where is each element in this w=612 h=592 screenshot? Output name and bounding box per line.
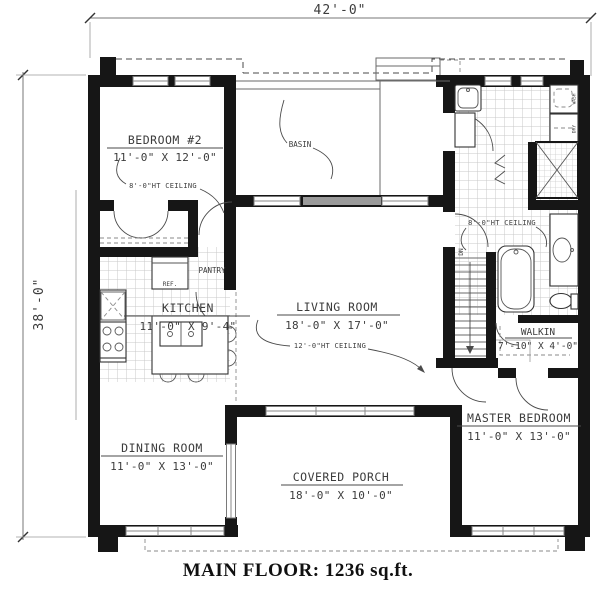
living-room-size: 18'-0" X 17'-0" <box>285 319 389 332</box>
laundry-sink <box>455 85 481 111</box>
kitchen-name: KITCHEN <box>162 301 214 315</box>
label-covered-porch: COVERED PORCH 18'-0" X 10'-0" <box>281 470 403 502</box>
wall-stairs-west <box>443 247 455 358</box>
wall-dining-east-upper <box>225 405 237 445</box>
dining-room-name: DINING ROOM <box>121 441 203 455</box>
dryer-label: DRY <box>572 125 578 133</box>
wall-master-north-a <box>498 368 516 378</box>
wall-closet-south <box>88 247 192 257</box>
label-living-room: LIVING ROOM 18'-0" X 17'-0" 12'-0"HT CEI… <box>256 300 425 373</box>
walkin-size: 7'-10" X 4'-0" <box>498 341 578 352</box>
french-door-left-arc <box>114 211 141 238</box>
wall-bedroom2-pantry-east <box>224 75 236 290</box>
stairs-down-arrow <box>466 346 474 354</box>
label-dining-room: DINING ROOM 11'-0" X 13'-0" <box>101 441 223 473</box>
kitchen-size: 11'-0" X 9'-4" <box>140 320 237 333</box>
bedroom2-ceiling-note: 8'-0"HT CEILING <box>129 182 197 190</box>
vanity-sink <box>550 214 578 286</box>
label-basin: BASIN <box>280 100 333 179</box>
wall-laundry-bath-divider <box>528 200 578 210</box>
covered-porch-name: COVERED PORCH <box>293 470 390 484</box>
living-room-name: LIVING ROOM <box>296 300 378 314</box>
wall-corner-post-left <box>100 57 116 77</box>
master-bedroom-size: 11'-0" X 13'-0" <box>467 430 571 443</box>
stairs-dn-label: DN <box>458 248 465 256</box>
bath-ceiling-note: 8'-0"HT CEILING <box>468 219 536 227</box>
label-master-bedroom: MASTER BEDROOM 11'-0" X 13'-0" <box>457 411 581 443</box>
bedroom2-size: 11'-0" X 12'-0" <box>113 151 217 164</box>
stoop-left <box>98 537 118 552</box>
label-pantry: PANTRY <box>198 266 226 275</box>
label-bedroom2: BEDROOM #2 11'-0" X 12'-0" 8'-0"HT CEILI… <box>107 133 224 213</box>
window-laundry-b <box>521 77 543 86</box>
wall-shower-west <box>528 142 536 200</box>
wall-left-exterior <box>88 75 100 537</box>
window-dining-south <box>126 527 224 536</box>
label-walkin: WALKIN 7'-10" X 4'-0" <box>498 327 578 352</box>
wall-dining-east-lower <box>225 517 237 537</box>
plan-footer-title: MAIN FLOOR: 1236 sq.ft. <box>183 560 414 581</box>
wall-walkin-north-b <box>518 315 578 323</box>
dimension-top: 42'-0" <box>85 3 596 76</box>
overall-width-dimension: 42'-0" <box>314 3 367 18</box>
wall-stairs-east <box>486 252 496 358</box>
wall-walkin-north-a <box>486 315 496 323</box>
window-basin-a <box>254 197 300 206</box>
window-bedroom2-a <box>133 77 168 86</box>
wall-stairs-south <box>436 358 498 368</box>
window-dining-east <box>227 444 236 518</box>
wall-bedroom2-south-a <box>88 200 114 211</box>
basin-name: BASIN <box>289 140 312 149</box>
living-room-ceiling-note: 12'-0"HT CEILING <box>294 342 366 350</box>
stoop-right <box>565 534 585 551</box>
toilet <box>550 294 578 310</box>
laundry-cabinet <box>455 113 475 147</box>
shower <box>536 142 578 198</box>
refrigerator: REF. <box>152 257 188 289</box>
refrigerator-label: REF. <box>163 281 177 288</box>
dimension-left: 38'-0" <box>16 70 86 542</box>
pantry-name: PANTRY <box>198 266 226 275</box>
wall-right-exterior <box>578 75 590 537</box>
wall-corner-post-right <box>570 60 584 77</box>
wall-laundry-west-a <box>443 87 455 113</box>
dining-room-size: 11'-0" X 13'-0" <box>110 460 214 473</box>
window-master-south <box>472 527 564 536</box>
walkin-name: WALKIN <box>521 327 556 338</box>
basin-court <box>236 81 450 195</box>
master-door-arc <box>516 378 548 410</box>
window-laundry-a <box>485 77 511 86</box>
master-bedroom-name: MASTER BEDROOM <box>467 411 571 425</box>
washer-label: WASH <box>572 93 578 104</box>
covered-porch-size: 18'-0" X 10'-0" <box>289 489 393 502</box>
bedroom2-name: BEDROOM #2 <box>128 133 202 147</box>
wall-master-west <box>450 405 462 537</box>
fireplace-strip <box>303 197 381 205</box>
bathtub <box>498 246 534 312</box>
washer-dryer: WASH DRY <box>550 85 578 143</box>
floor-plan-page: 42'-0" 38'-0" <box>0 0 612 592</box>
wall-laundry-west-b <box>443 151 455 212</box>
wall-master-north-b <box>548 368 590 378</box>
floor-plan-drawing: 42'-0" 38'-0" <box>0 0 612 592</box>
range-cooktop <box>100 322 126 358</box>
vestibule-door-arc <box>452 368 486 402</box>
french-door-right-arc <box>141 211 168 238</box>
window-living-south <box>266 407 414 416</box>
window-bedroom2-b <box>175 77 210 86</box>
overall-height-dimension: 38'-0" <box>32 278 47 331</box>
window-basin-b <box>382 197 428 206</box>
